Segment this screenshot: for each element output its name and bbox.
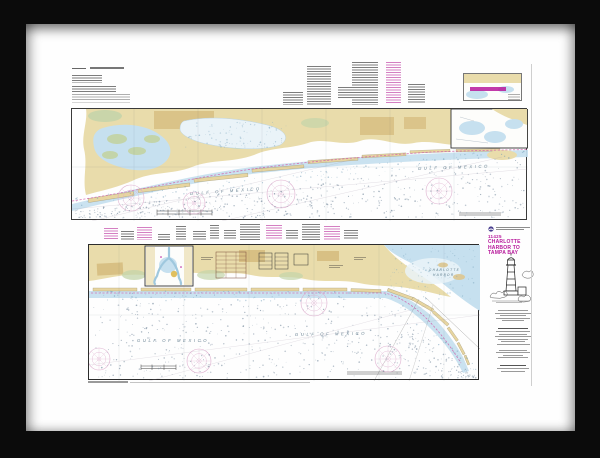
- note-block: [121, 231, 134, 240]
- note-block: [408, 84, 425, 103]
- noaa-emblem-icon: [488, 226, 494, 232]
- note-block: [158, 234, 170, 241]
- bay-label: CHARLOTTE: [429, 268, 460, 272]
- bay-label: HARBOR: [433, 273, 454, 277]
- agency-micro-text: [496, 227, 536, 232]
- sheet-edge-line: [531, 64, 532, 386]
- print-note: [88, 381, 128, 383]
- compass-rose-icon: [89, 348, 110, 370]
- compass-rose-icon: [426, 178, 452, 204]
- note-block: [224, 230, 236, 239]
- lower-inset-map: [145, 246, 193, 286]
- note-block: [352, 62, 378, 105]
- framed-chart-photo: GULF OF MEXICO GULF OF MEXICO: [0, 0, 600, 458]
- note-block: [283, 92, 303, 105]
- shallow-water-band: [89, 291, 469, 373]
- note-block: [286, 230, 298, 239]
- compass-rose-icon: [183, 192, 205, 214]
- lower-chart-panel: GULF OF MEXICO GULF OF MEXICO CHARLOTTE …: [88, 244, 479, 380]
- sea-label: GULF OF MEXICO: [295, 331, 367, 337]
- barrier-islands: [93, 288, 470, 365]
- note-block: [176, 226, 186, 240]
- locator-inset-map: [463, 73, 522, 101]
- inset-highlight-bar: [470, 87, 506, 91]
- compass-rose-icon: [118, 185, 144, 211]
- note-block: [344, 230, 358, 239]
- compass-rose-icon: [301, 290, 327, 316]
- margin-notes: [492, 310, 534, 373]
- note-block-magenta: [386, 62, 401, 103]
- note-block-magenta: [104, 228, 118, 240]
- compass-rose-icon: [267, 180, 295, 208]
- scale-bar: [157, 210, 501, 216]
- mat-board: GULF OF MEXICO GULF OF MEXICO: [26, 24, 575, 431]
- chart-info-block: [72, 67, 134, 107]
- note-block: [193, 231, 206, 240]
- upper-inset-map: [451, 109, 528, 148]
- note-block-magenta: [324, 226, 340, 240]
- note-block-magenta: [266, 225, 282, 240]
- note-block-magenta: [137, 227, 152, 240]
- compass-rose-icon: [375, 346, 401, 372]
- lighthouse-illustration: [488, 251, 534, 303]
- coastal-town: [487, 150, 517, 160]
- note-block: [307, 66, 331, 106]
- print-note: [130, 382, 310, 383]
- note-block: [338, 87, 352, 99]
- note-block: [210, 225, 219, 240]
- note-block: [302, 224, 320, 240]
- note-block: [240, 224, 260, 241]
- upper-chart-panel: GULF OF MEXICO GULF OF MEXICO: [71, 108, 527, 220]
